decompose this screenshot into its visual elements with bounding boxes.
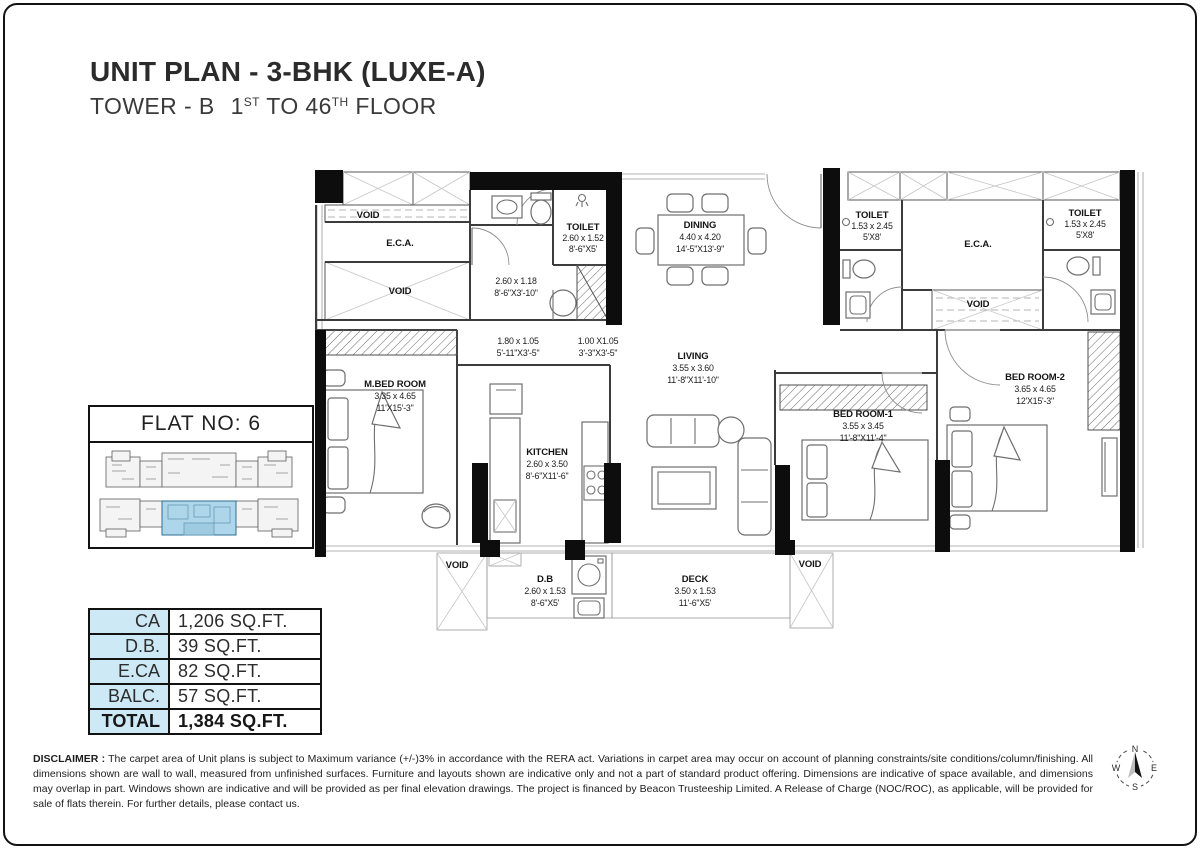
compass-e: E: [1151, 763, 1157, 773]
room-dim-foyer: 2.60 x 1.18: [495, 276, 537, 286]
table-row: D.B. 39 SQ.FT.: [89, 634, 321, 659]
room-dim: 5'-11"X3'-5": [497, 348, 540, 358]
room-dim: 11'X15'-3": [376, 403, 413, 413]
room-label-dining: DINING: [684, 220, 717, 231]
armchair: [422, 504, 450, 528]
table-row: BALC. 57 SQ.FT.: [89, 684, 321, 709]
deck-band: [437, 553, 833, 630]
utility-fixtures: [572, 556, 606, 618]
room-dim: 8'-6"X11'-6": [526, 471, 569, 481]
room-dim: 8'-6"X3'-10": [494, 288, 537, 298]
compass-w: W: [1112, 763, 1121, 773]
flat-number-label: FLAT NO: 6: [90, 407, 312, 443]
room-label-kitchen: KITCHEN: [526, 447, 568, 458]
floor-plan: VOID E.C.A. VOID TOILET 2.60 x 1.52 8'-6…: [310, 160, 1150, 643]
room-label-void-bottom-right: VOID: [799, 559, 822, 570]
bedroom1-bed: [802, 440, 928, 520]
key-plan-highlighted-unit: [162, 501, 236, 535]
flat-number-box: FLAT NO: 6: [88, 405, 314, 549]
room-dim: 8'-6"X5': [531, 598, 560, 608]
room-dim: 3'-3"X3'-5": [579, 348, 618, 358]
table-row: CA 1,206 SQ.FT.: [89, 609, 321, 634]
north-compass-icon: N E S W: [1106, 738, 1164, 803]
area-row-value: 39 SQ.FT.: [169, 634, 321, 659]
room-dim: 3.50 x 1.53: [674, 586, 716, 596]
room-dim: 2.60 x 3.50: [526, 459, 568, 469]
room-label-toilet-mid: TOILET: [855, 210, 888, 221]
area-row-value: 1,384 SQ.FT.: [169, 709, 321, 734]
disclaimer-label: DISCLAIMER :: [33, 753, 105, 765]
area-row-value: 57 SQ.FT.: [169, 684, 321, 709]
room-labels: VOID E.C.A. VOID TOILET 2.60 x 1.52 8'-6…: [357, 208, 1106, 608]
room-label-eca-right: E.C.A.: [964, 239, 991, 250]
room-dim: 3.55 x 3.60: [672, 363, 714, 373]
page-subtitle: TOWER - B1ST TO 46TH FLOOR: [90, 93, 437, 120]
toilet-fixtures-entrance: [492, 193, 588, 320]
room-dim-passage-1: 1.80 x 1.05: [497, 336, 539, 346]
subtitle-sup-st: ST: [244, 95, 260, 109]
room-dim: 1.53 x 2.45: [1064, 219, 1106, 229]
subtitle-sup-th: TH: [332, 95, 349, 109]
area-row-label: BALC.: [89, 684, 169, 709]
room-dim: 4.40 x 4.20: [679, 232, 721, 242]
room-dim: 14'-5"X13'-9": [676, 244, 724, 254]
area-row-label: TOTAL: [89, 709, 169, 734]
room-label-void-right: VOID: [967, 299, 990, 310]
room-dim: 11'-8"X11'-10": [667, 375, 719, 385]
room-dim: 11'-6"X5': [679, 598, 712, 608]
room-dim: 8'-6"X5': [569, 244, 598, 254]
room-dim: 12'X15'-3": [1016, 396, 1054, 406]
room-label-void-top-left: VOID: [357, 210, 380, 221]
room-dim: 3.65 x 4.65: [1014, 384, 1056, 394]
room-label-toilet-right: TOILET: [1068, 208, 1101, 219]
area-statement-table: CA 1,206 SQ.FT. D.B. 39 SQ.FT. E.CA 82 S…: [88, 608, 322, 735]
table-row-total: TOTAL 1,384 SQ.FT.: [89, 709, 321, 734]
unit-plan-sheet: UNIT PLAN - 3-BHK (LUXE-A) TOWER - B1ST …: [0, 0, 1200, 849]
duct-band: [343, 172, 1120, 205]
room-label-bedroom-1: BED ROOM-1: [833, 409, 894, 420]
room-label-toilet-entrance: TOILET: [566, 222, 599, 233]
room-dim-passage-2: 1.00 X1.05: [578, 336, 619, 346]
room-label-void-bottom-left: VOID: [446, 560, 469, 571]
room-dim: 5'X8': [1076, 230, 1095, 240]
compass-s: S: [1132, 782, 1138, 792]
room-label-eca-left: E.C.A.: [386, 238, 413, 249]
table-row: E.CA 82 SQ.FT.: [89, 659, 321, 684]
room-dim: 11'-8"X11'-4": [840, 433, 887, 443]
area-row-label: D.B.: [89, 634, 169, 659]
subtitle-floor-word: FLOOR: [349, 93, 437, 119]
room-label-master-bedroom: M.BED ROOM: [364, 379, 426, 390]
area-row-value: 1,206 SQ.FT.: [169, 609, 321, 634]
disclaimer-body: The carpet area of Unit plans is subject…: [33, 753, 1093, 810]
room-dim: 2.60 x 1.52: [562, 233, 604, 243]
subtitle-tower: TOWER - B: [90, 93, 215, 119]
subtitle-floor-from: 1: [231, 93, 244, 119]
room-dim: 5'X8': [863, 232, 882, 242]
subtitle-floor-to: TO 46: [260, 93, 332, 119]
room-label-living: LIVING: [677, 351, 708, 362]
area-row-value: 82 SQ.FT.: [169, 659, 321, 684]
room-dim: 3.55 x 3.45: [842, 421, 884, 431]
living-furniture: [647, 415, 771, 535]
area-row-label: CA: [89, 609, 169, 634]
room-label-bedroom-2: BED ROOM-2: [1005, 372, 1065, 383]
room-dim: 3.35 x 4.65: [374, 391, 416, 401]
room-label-deck: DECK: [682, 574, 709, 585]
room-dim: 1.53 x 2.45: [851, 221, 893, 231]
disclaimer-text: DISCLAIMER : The carpet area of Unit pla…: [33, 752, 1093, 812]
key-plan: [92, 445, 306, 548]
page-title: UNIT PLAN - 3-BHK (LUXE-A): [90, 56, 486, 88]
area-row-label: E.CA: [89, 659, 169, 684]
room-dim: 2.60 x 1.53: [524, 586, 566, 596]
room-label-void-left: VOID: [389, 286, 412, 297]
room-label-db: D.B: [537, 574, 553, 585]
